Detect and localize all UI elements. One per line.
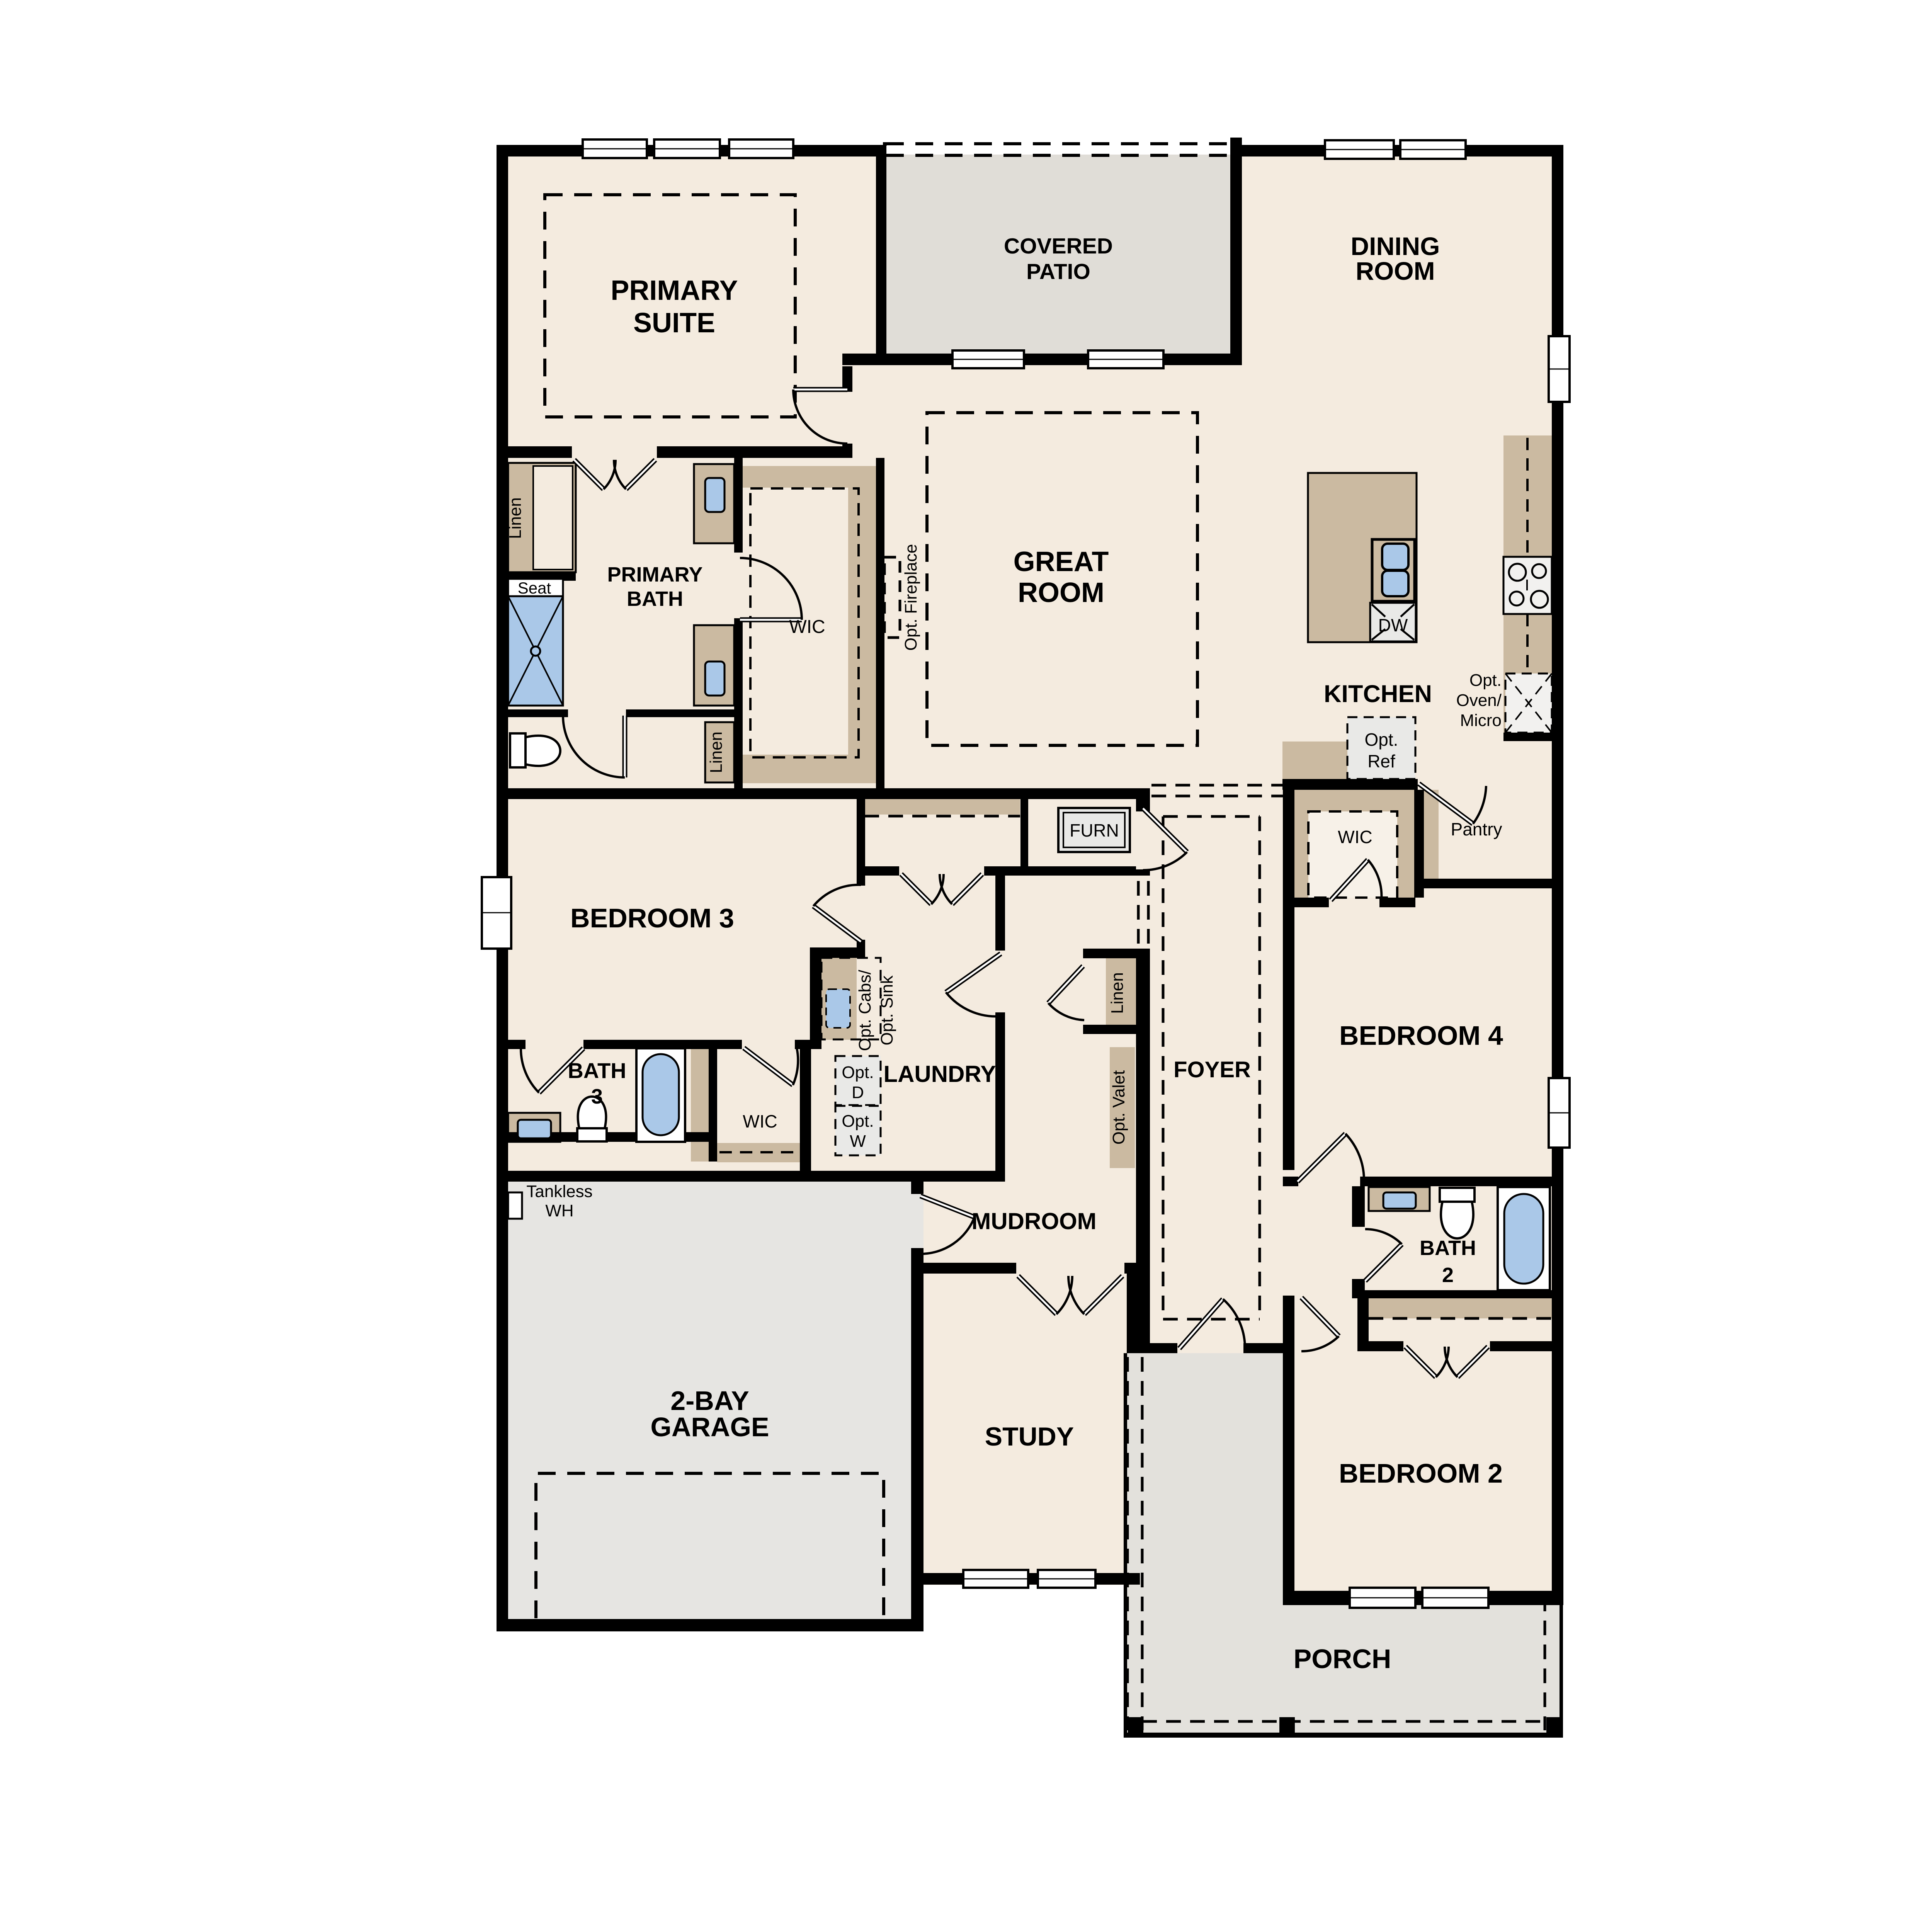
svg-text:PRIMARY: PRIMARY — [607, 563, 702, 586]
svg-text:KITCHEN: KITCHEN — [1324, 680, 1432, 707]
svg-text:LAUNDRY: LAUNDRY — [883, 1061, 996, 1087]
svg-text:3: 3 — [591, 1085, 603, 1108]
svg-text:PRIMARY: PRIMARY — [611, 275, 738, 306]
svg-text:FURN: FURN — [1070, 820, 1119, 840]
svg-text:2-BAY: 2-BAY — [670, 1386, 749, 1416]
svg-text:Opt.: Opt. — [842, 1112, 874, 1131]
svg-text:SUITE: SUITE — [633, 308, 715, 338]
svg-text:Opt. Sink: Opt. Sink — [878, 975, 896, 1046]
svg-text:PORCH: PORCH — [1294, 1644, 1391, 1674]
svg-text:GARAGE: GARAGE — [650, 1412, 769, 1442]
svg-text:BEDROOM 2: BEDROOM 2 — [1339, 1458, 1503, 1488]
svg-text:Seat: Seat — [518, 579, 551, 597]
svg-text:GREAT: GREAT — [1014, 546, 1109, 577]
svg-text:WIC: WIC — [789, 617, 825, 637]
svg-text:Opt.: Opt. — [1469, 671, 1502, 690]
svg-text:BEDROOM 3: BEDROOM 3 — [570, 903, 734, 933]
svg-text:STUDY: STUDY — [985, 1422, 1074, 1451]
svg-text:Oven/: Oven/ — [1456, 691, 1502, 710]
svg-text:WIC: WIC — [743, 1111, 777, 1131]
svg-text:BATH: BATH — [1420, 1236, 1476, 1260]
svg-text:Ref: Ref — [1367, 751, 1395, 771]
svg-text:Linen: Linen — [707, 731, 726, 773]
svg-text:Pantry: Pantry — [1451, 819, 1502, 839]
svg-text:DINING: DINING — [1351, 232, 1440, 260]
svg-text:MUDROOM: MUDROOM — [971, 1208, 1096, 1234]
svg-text:WH: WH — [545, 1201, 573, 1220]
svg-text:Opt. Fireplace: Opt. Fireplace — [901, 544, 920, 651]
svg-text:Opt. Cabs/: Opt. Cabs/ — [855, 969, 874, 1051]
svg-text:Opt.: Opt. — [842, 1063, 874, 1082]
svg-text:W: W — [850, 1132, 866, 1151]
svg-text:WIC: WIC — [1338, 827, 1372, 847]
svg-text:Linen: Linen — [506, 497, 525, 539]
svg-text:Linen: Linen — [1108, 972, 1127, 1014]
svg-text:ROOM: ROOM — [1018, 577, 1104, 608]
svg-text:FOYER: FOYER — [1173, 1057, 1251, 1082]
svg-text:Tankless: Tankless — [526, 1182, 592, 1201]
svg-text:Micro: Micro — [1460, 711, 1502, 730]
svg-text:BATH: BATH — [568, 1058, 626, 1083]
svg-text:BEDROOM 4: BEDROOM 4 — [1339, 1020, 1503, 1051]
svg-text:DW: DW — [1378, 615, 1408, 635]
svg-text:D: D — [852, 1083, 864, 1102]
svg-text:PATIO: PATIO — [1026, 259, 1090, 284]
svg-text:COVERED: COVERED — [1004, 234, 1113, 259]
svg-text:Opt. Valet: Opt. Valet — [1109, 1070, 1128, 1145]
svg-text:BATH: BATH — [627, 587, 683, 611]
svg-text:ROOM: ROOM — [1355, 257, 1435, 285]
svg-text:Opt.: Opt. — [1365, 730, 1398, 750]
svg-text:2: 2 — [1442, 1264, 1454, 1287]
